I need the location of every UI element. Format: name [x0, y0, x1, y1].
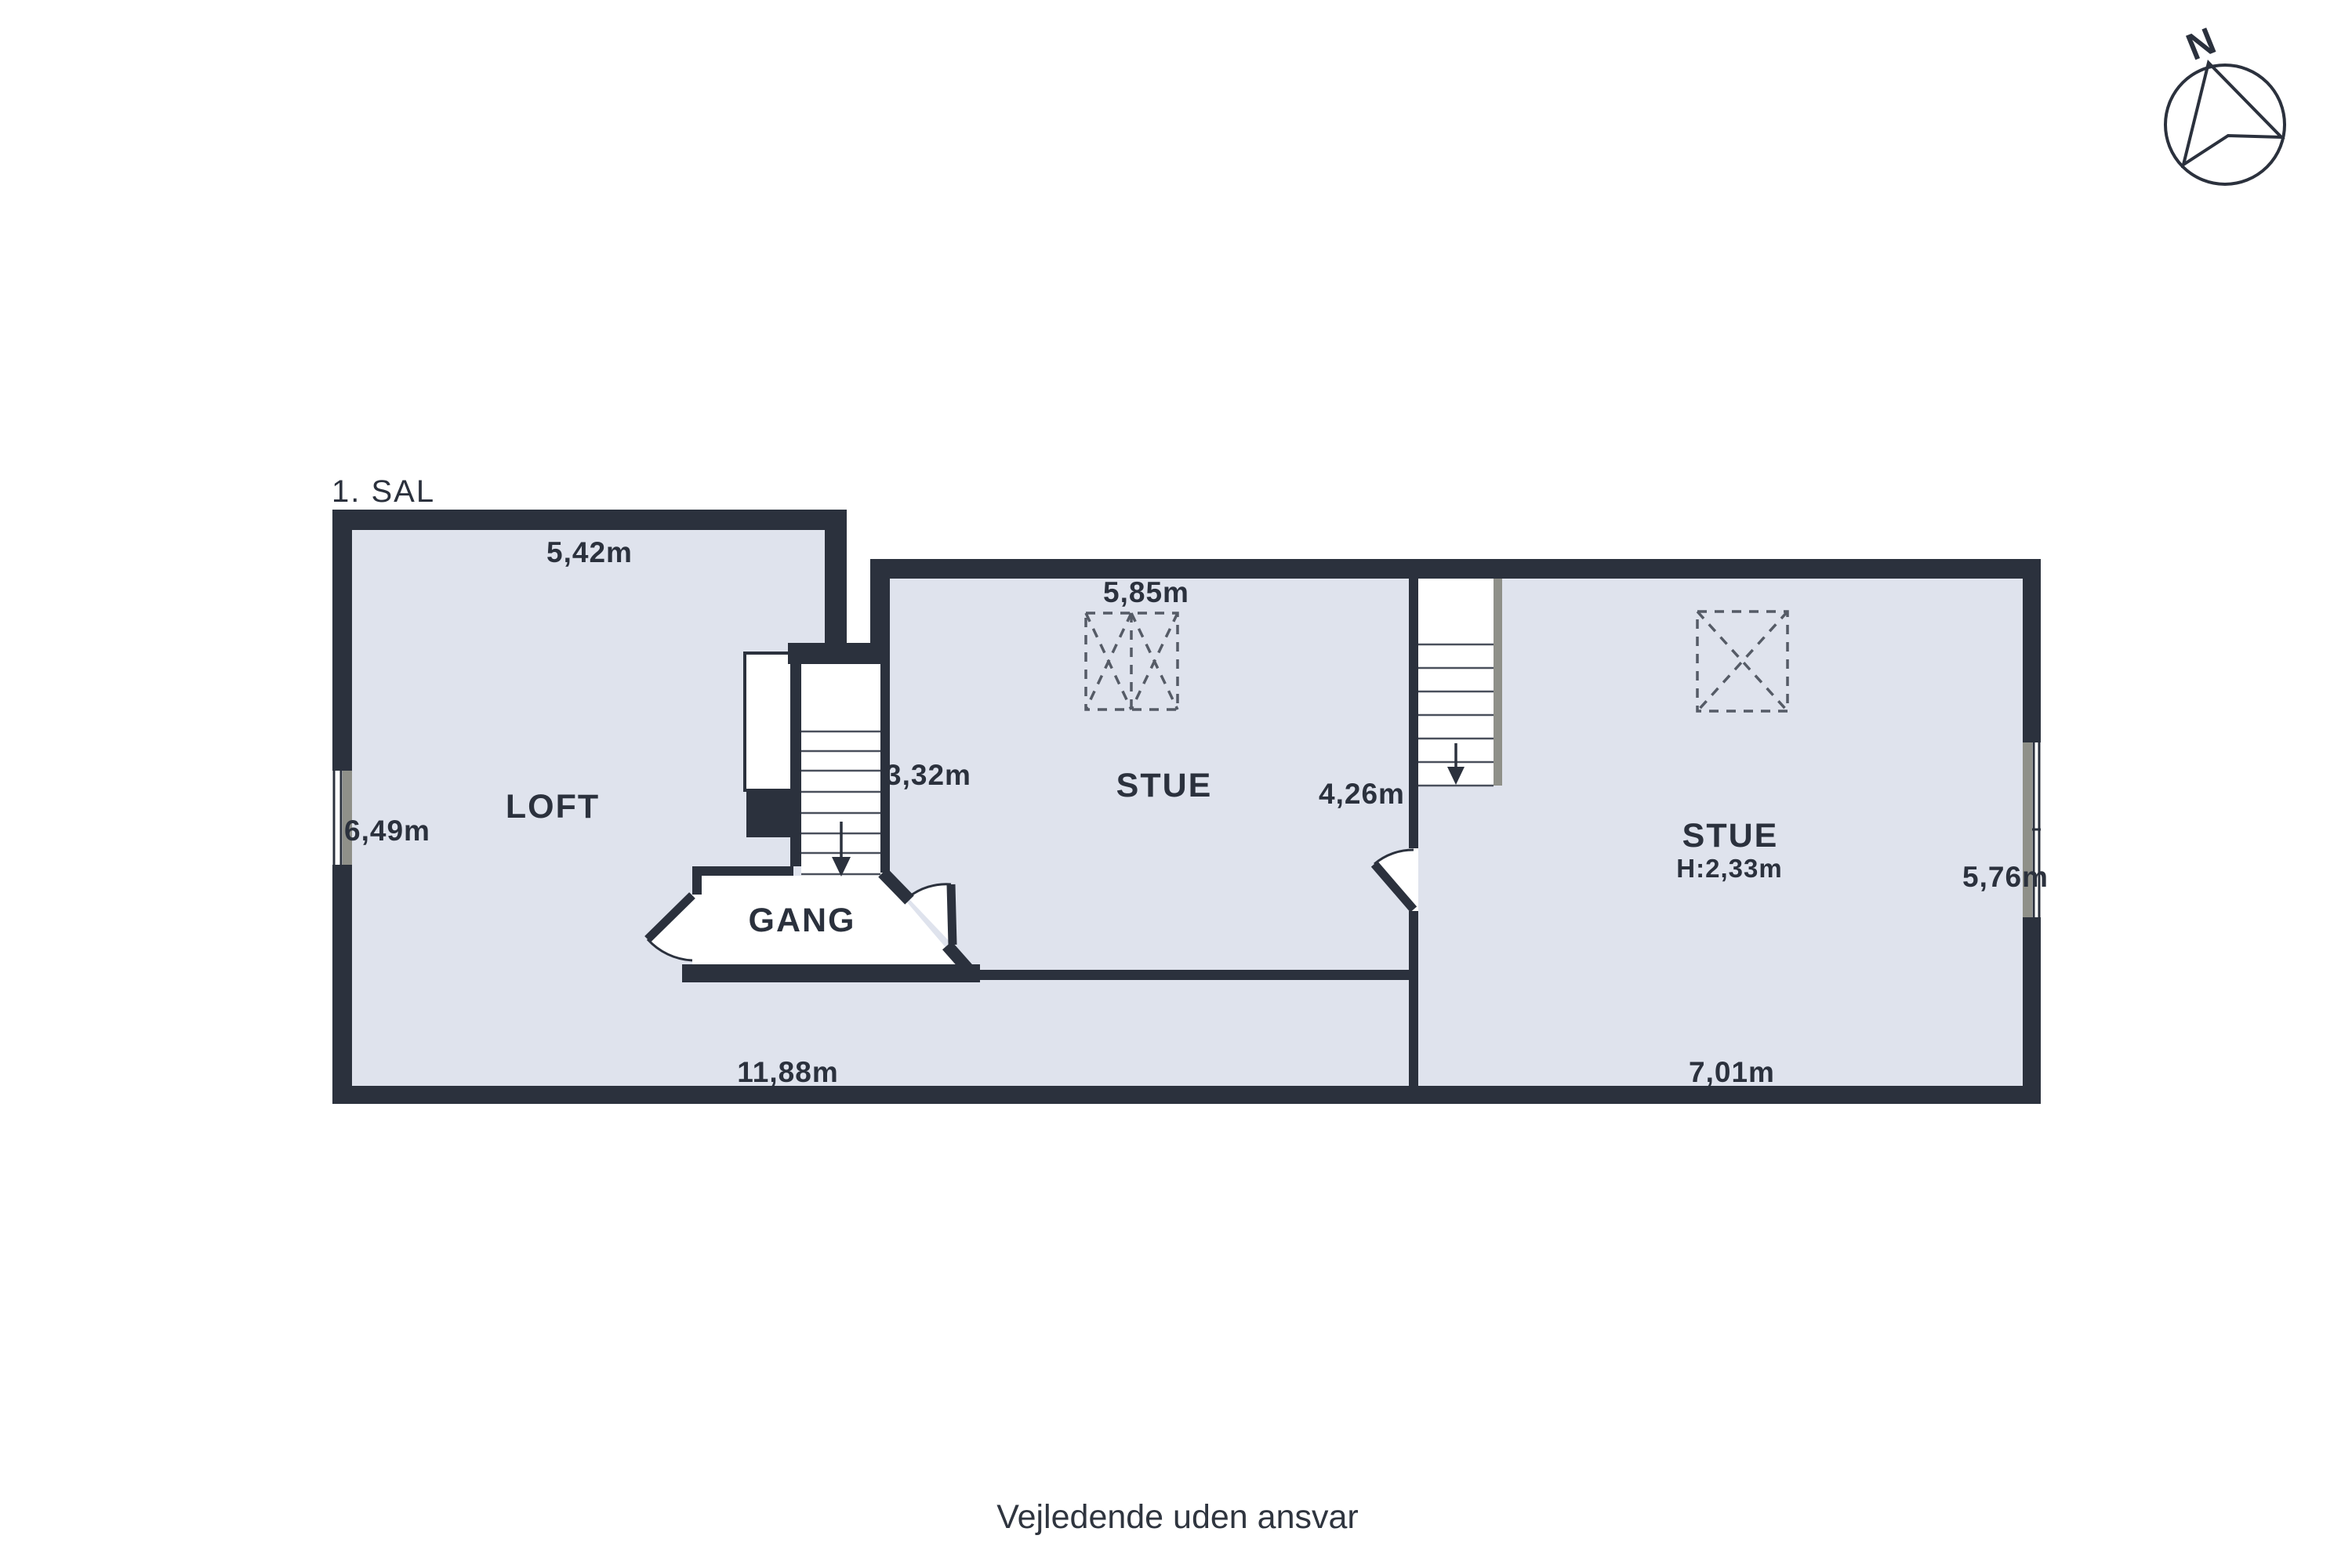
closet: [745, 653, 793, 790]
dim-stue-right-height: 5,76m: [1962, 861, 2049, 893]
wall-stue-mid-bottom: [972, 970, 1409, 980]
ceiling-height-label: H:2,33m: [1676, 854, 1782, 883]
room-label-stue-mid: STUE: [1116, 767, 1213, 804]
wall-gang-bottom: [682, 964, 980, 982]
wall-right-upper: [2023, 579, 2041, 742]
wall-divider-upper: [1409, 579, 1418, 848]
wall-block: [746, 790, 794, 837]
bottom-strip-floor: [825, 980, 1409, 1086]
floor-areas: [352, 530, 2023, 1086]
compass-needle-icon: [2183, 63, 2281, 165]
gang-right-door-leaf: [951, 884, 953, 945]
wall-main-top: [870, 559, 2041, 579]
floorplan-canvas: N 1. SAL LOFT GANG STUE STUE H:2,33m 5,4…: [0, 0, 2352, 1568]
stairwell-right-rail: [1494, 579, 1502, 786]
wall-right-lower: [2023, 917, 2041, 1104]
room-label-gang: GANG: [749, 902, 856, 939]
dim-stue-right-width: 7,01m: [1689, 1056, 1775, 1088]
room-label-loft: LOFT: [506, 788, 600, 826]
wall-stue-mid-left: [870, 579, 890, 664]
wall-divider-lower: [1409, 911, 1418, 1086]
disclaimer-text: Vejledende uden ansvar: [996, 1498, 1358, 1536]
wall-left-lower: [332, 865, 352, 1104]
dim-loft-width: 5,42m: [546, 536, 633, 568]
wall-gang-top: [692, 866, 793, 876]
floor-title: 1. SAL: [332, 474, 435, 509]
dim-loft-height: 6,49m: [344, 815, 430, 847]
wall-left-upper: [332, 510, 352, 771]
wall-bottom: [332, 1086, 2041, 1104]
wall-gang-jamb: [692, 866, 702, 895]
floorplan-page: N 1. SAL LOFT GANG STUE STUE H:2,33m 5,4…: [0, 0, 2352, 1568]
dim-stair-depth: 3,32m: [885, 759, 971, 791]
room-label-stue-right: STUE: [1682, 817, 1779, 855]
compass-north-label: N: [2181, 20, 2222, 69]
dim-bottom-left-width: 11,88m: [737, 1056, 838, 1088]
compass: N: [2165, 20, 2285, 184]
dim-stue-mid-height: 4,26m: [1319, 778, 1405, 810]
wall-loft-top: [332, 510, 847, 530]
dim-stue-mid-width: 5,85m: [1103, 576, 1189, 608]
